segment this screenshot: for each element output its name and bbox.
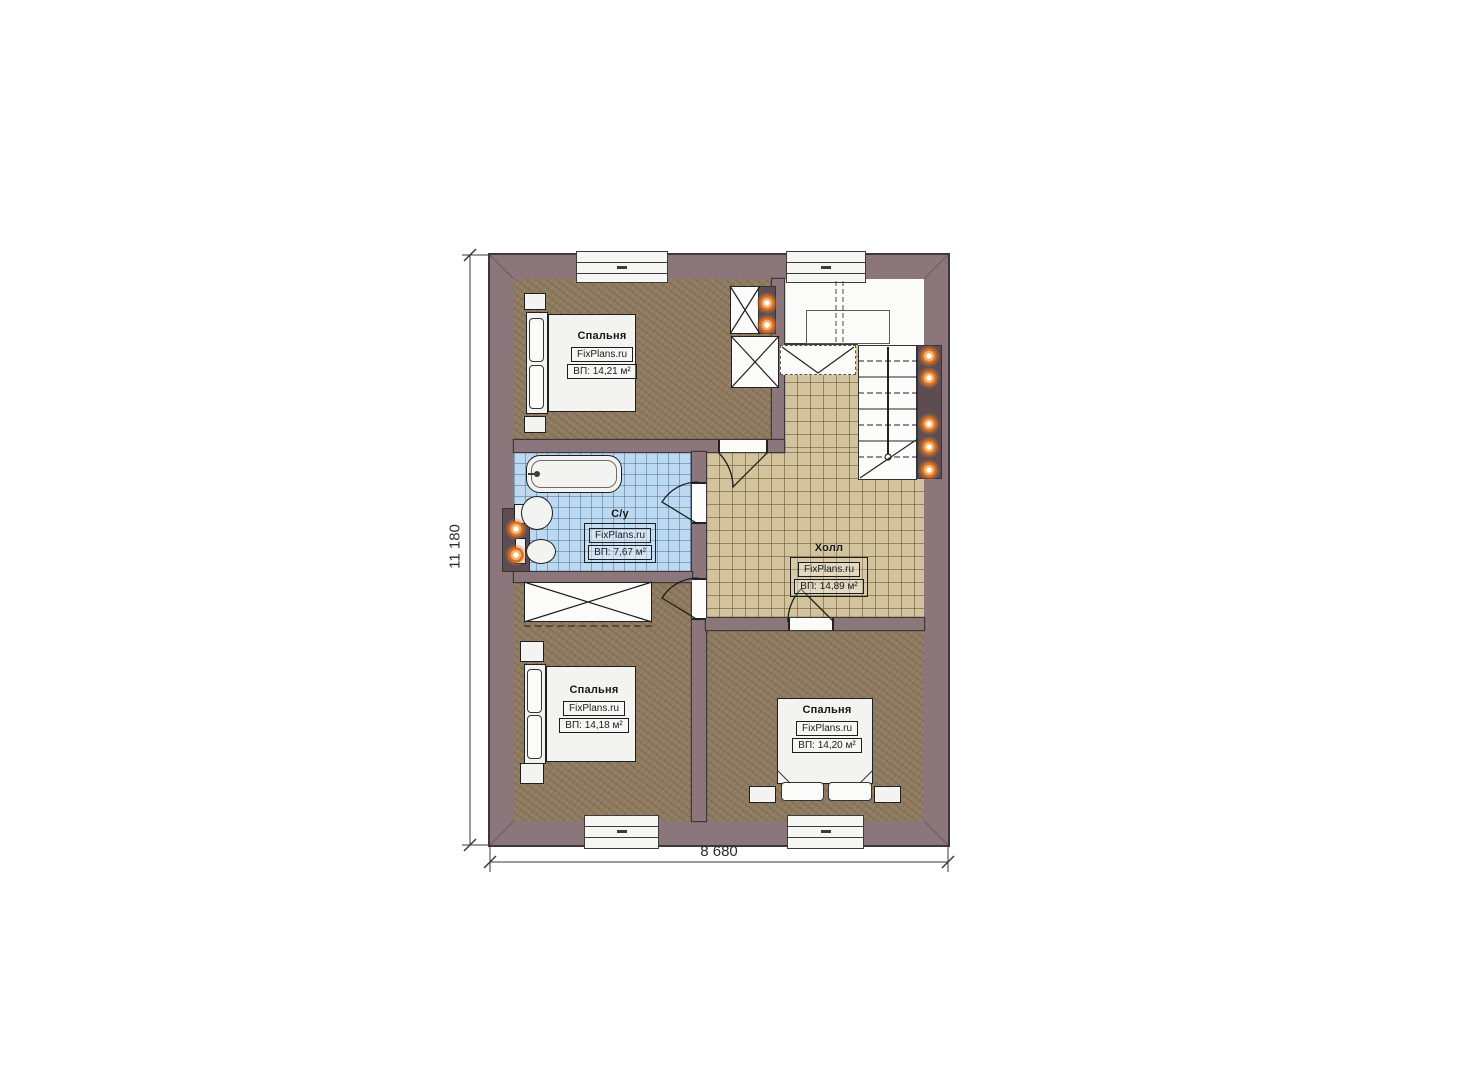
room-area-label: ВП: 14,21 м² — [567, 364, 636, 379]
sink — [521, 496, 553, 530]
pillow — [527, 669, 542, 713]
room-area-label: ВП: 7,67 м² — [588, 545, 652, 560]
watermark-label: FixPlans.ru — [796, 721, 858, 736]
watermark-label: FixPlans.ru — [563, 701, 625, 716]
room-label-hall: Холл FixPlans.ru ВП: 14,89 м² — [779, 542, 879, 597]
room-label-bedroom-top: Спальня FixPlans.ru ВП: 14,21 м² — [552, 330, 652, 379]
label-frame: FixPlans.ru ВП: 7,67 м² — [584, 523, 656, 563]
room-name: С/у — [611, 508, 629, 520]
pillow — [781, 782, 824, 801]
watermark-label: FixPlans.ru — [589, 528, 651, 543]
nightstand — [520, 763, 544, 784]
nightstand — [520, 641, 544, 662]
watermark-label: FixPlans.ru — [571, 347, 633, 362]
nightstand — [874, 786, 901, 803]
toilet — [526, 539, 556, 564]
pillow — [828, 782, 872, 801]
landing-guard — [806, 310, 890, 344]
window-top-left — [576, 251, 668, 283]
door-opening-bedroom-bottom-left — [692, 578, 706, 620]
window-top-right — [786, 251, 866, 283]
room-name: Спальня — [570, 684, 619, 696]
nightstand — [524, 293, 546, 310]
room-name: Спальня — [803, 704, 852, 716]
wardrobe-top-1 — [730, 286, 760, 334]
stair-light-recess — [917, 345, 942, 479]
room-area-label: ВП: 14,18 м² — [559, 718, 628, 733]
label-frame: FixPlans.ru ВП: 14,89 м² — [790, 557, 867, 597]
shaft-light-recess — [758, 286, 776, 334]
door-opening-bedroom-bottom-right — [788, 618, 834, 630]
nightstand — [749, 786, 776, 803]
closet-bedroom-bottom-left — [524, 582, 652, 622]
room-name: Холл — [815, 542, 843, 554]
watermark-label: FixPlans.ru — [798, 562, 860, 577]
toilet-tank — [515, 538, 526, 564]
pillow — [527, 715, 542, 759]
door-opening-bedroom-top — [718, 440, 768, 452]
dimension-width-label: 8 680 — [659, 843, 779, 860]
room-name: Спальня — [578, 330, 627, 342]
dimension-line-left — [462, 249, 490, 851]
nightstand — [524, 416, 546, 433]
bathtub — [526, 455, 622, 493]
wardrobe-top-2 — [731, 336, 779, 388]
door-opening-bathroom — [692, 482, 706, 524]
room-label-bedroom-bottom-right: Спальня FixPlans.ru ВП: 14,20 м² — [777, 704, 877, 753]
room-area-label: ВП: 14,20 м² — [792, 738, 861, 753]
room-label-bathroom: С/у FixPlans.ru ВП: 7,67 м² — [578, 508, 662, 563]
dimension-height-label: 11 180 — [447, 507, 464, 587]
pillow — [529, 318, 544, 362]
floor-plan-canvas: Спальня FixPlans.ru ВП: 14,21 м² С/у Fix… — [0, 0, 1473, 1080]
staircase — [858, 345, 917, 480]
wall-bathroom-bottom — [514, 572, 692, 582]
room-label-bedroom-bottom-left: Спальня FixPlans.ru ВП: 14,18 м² — [544, 684, 644, 733]
pillow — [529, 365, 544, 409]
room-area-label: ВП: 14,89 м² — [794, 579, 863, 594]
stair-break-box — [780, 345, 856, 375]
window-bottom-right — [787, 815, 864, 849]
window-bottom-left — [584, 815, 659, 849]
